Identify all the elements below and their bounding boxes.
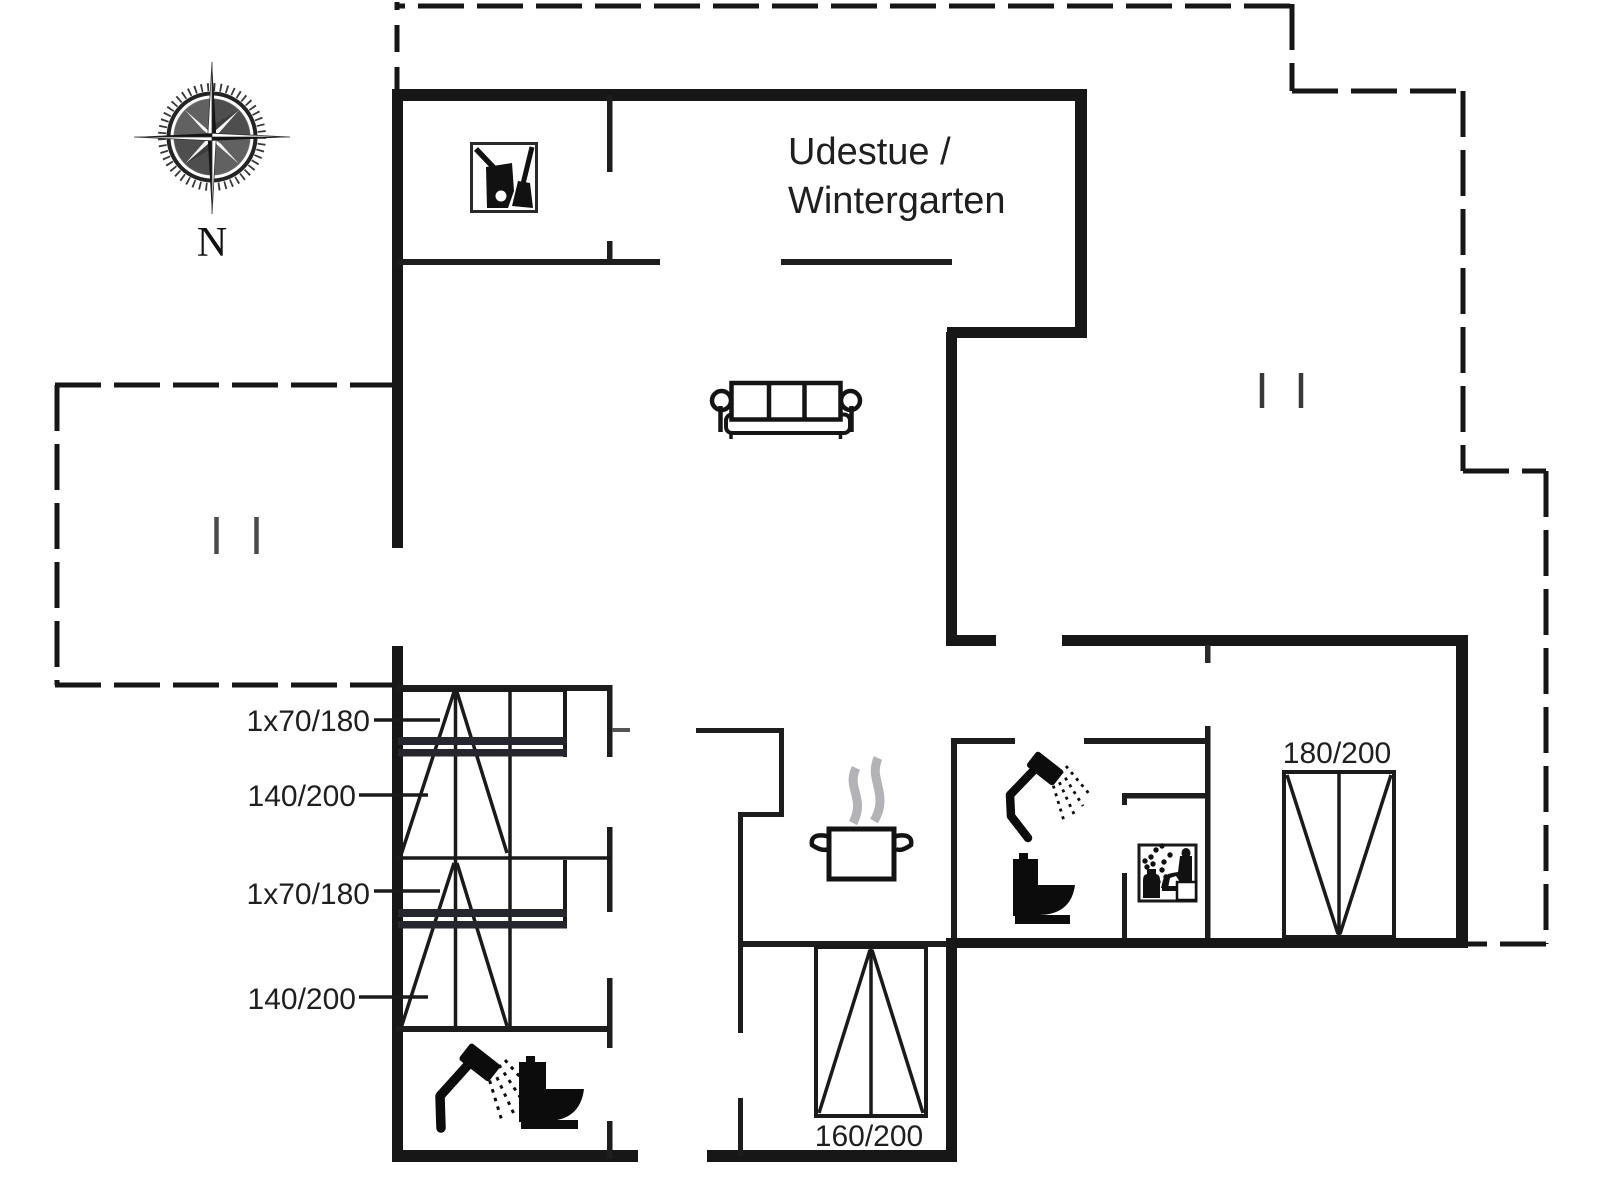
svg-text:140/200: 140/200 <box>248 983 356 1016</box>
svg-text:N: N <box>197 220 227 266</box>
svg-text:140/200: 140/200 <box>248 780 356 813</box>
svg-text:1x70/180: 1x70/180 <box>247 878 370 911</box>
svg-text:160/200: 160/200 <box>815 1120 923 1153</box>
svg-text:Wintergarten: Wintergarten <box>788 180 1006 222</box>
svg-text:1x70/180: 1x70/180 <box>247 705 370 738</box>
svg-text:180/200: 180/200 <box>1283 737 1391 770</box>
svg-text:Udestue /: Udestue / <box>788 131 951 173</box>
